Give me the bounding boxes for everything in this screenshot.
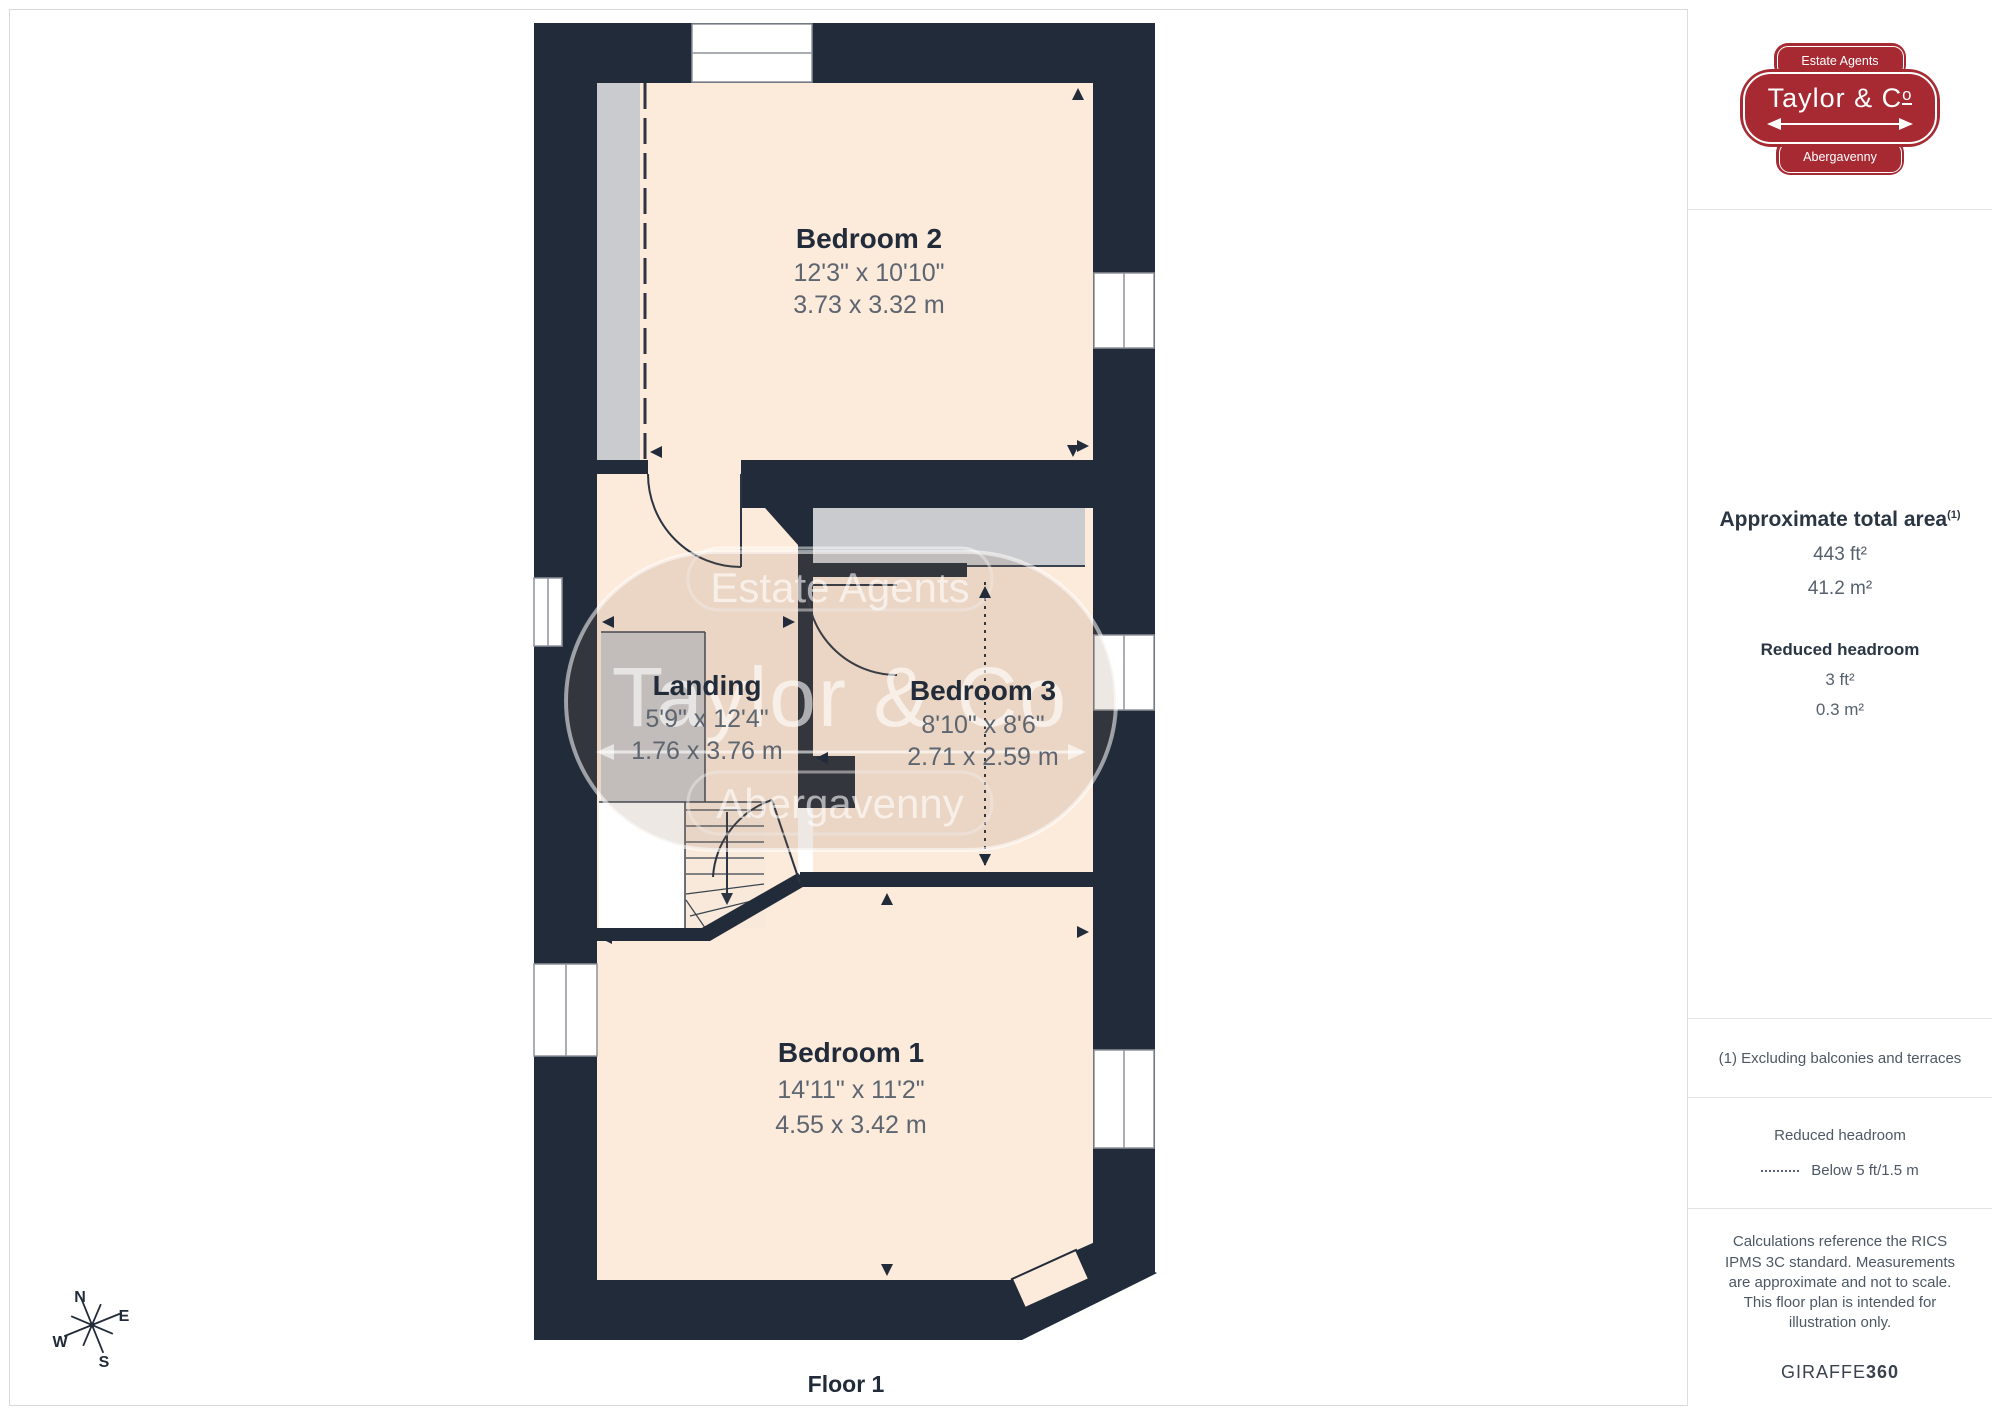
legend-item-label: Below 5 ft/1.5 m [1811,1162,1919,1179]
logo-arrow-icon [1765,117,1915,131]
svg-text:3.73 x 3.32 m: 3.73 x 3.32 m [793,291,944,319]
room-label-bedroom3: Bedroom 3 8'10" x 8'6" 2.71 x 2.59 m [907,675,1058,771]
room-label-bedroom1: Bedroom 1 14'11" x 11'2" 4.55 x 3.42 m [775,1037,926,1139]
area-imperial: 443 ft² [1813,544,1867,566]
giraffe360-brand: GIRAFFE360 [1781,1362,1899,1383]
svg-text:Bedroom 2: Bedroom 2 [796,223,942,254]
reduced-headroom-imperial: 3 ft² [1825,670,1854,690]
legend-dotted-line-icon [1761,1170,1799,1172]
svg-text:8'10" x 8'6": 8'10" x 8'6" [921,711,1044,739]
window-top-bedroom2 [692,24,812,82]
area-footnote-marker: (1) [1947,509,1960,521]
sidebar: Estate Agents Abergavenny Taylor & Co Ap… [1687,9,1992,1406]
room-label-bedroom2: Bedroom 2 12'3" x 10'10" 3.73 x 3.32 m [793,223,944,319]
watermark-bottom-text: Abergavenny [716,780,964,827]
window-right-bedroom1 [1094,1050,1154,1148]
svg-text:1.76 x 3.76 m: 1.76 x 3.76 m [631,737,782,765]
compass-e: E [119,1308,130,1325]
note-section: (1) Excluding balconies and terraces [1688,1018,1992,1097]
svg-text:2.71 x 2.59 m: 2.71 x 2.59 m [907,743,1058,771]
watermark-top-text: Estate Agents [710,564,969,611]
reduced-headroom-title: Reduced headroom [1761,640,1920,660]
compass-n: N [74,1289,86,1306]
compass: N E W S [52,1286,131,1371]
compass-s: S [99,1354,110,1371]
room-label-landing: Landing 5'9" x 12'4" 1.76 x 3.76 m [631,670,782,765]
reduced-headroom-metric: 0.3 m² [1816,700,1864,720]
compass-w: W [52,1334,68,1351]
disclaimer-section: Calculations reference the RICS IPMS 3C … [1688,1208,1992,1406]
svg-text:14'11" x 11'2": 14'11" x 11'2" [777,1076,924,1104]
disclaimer-text: Calculations reference the RICS IPMS 3C … [1714,1232,1966,1333]
window-left-bedroom1 [534,964,597,1056]
area-title: Approximate total area(1) [1719,508,1960,532]
logo-main-stadium: Taylor & Co [1740,69,1940,147]
svg-text:Bedroom 1: Bedroom 1 [778,1037,924,1068]
logo-name: Taylor & Co [1768,85,1913,113]
svg-text:Landing: Landing [653,670,762,701]
svg-text:12'3" x 10'10": 12'3" x 10'10" [793,259,944,287]
taylor-co-logo: Estate Agents Abergavenny Taylor & Co [1740,43,1940,175]
legend-section: Reduced headroom Below 5 ft/1.5 m [1688,1097,1992,1208]
legend-title: Reduced headroom [1774,1127,1906,1144]
area-section: Approximate total area(1) 443 ft² 41.2 m… [1688,209,1992,1018]
svg-text:4.55 x 3.42 m: 4.55 x 3.42 m [775,1111,926,1139]
svg-text:5'9" x 12'4": 5'9" x 12'4" [645,705,768,733]
window-left-landing [534,578,562,646]
area-metric: 41.2 m² [1808,578,1872,600]
svg-text:Bedroom 3: Bedroom 3 [910,675,1056,706]
logo-section: Estate Agents Abergavenny Taylor & Co [1688,9,1992,209]
floor-label: Floor 1 [808,1371,885,1397]
window-right-bedroom2 [1094,273,1154,348]
footnote-text: (1) Excluding balconies and terraces [1700,1050,1980,1067]
